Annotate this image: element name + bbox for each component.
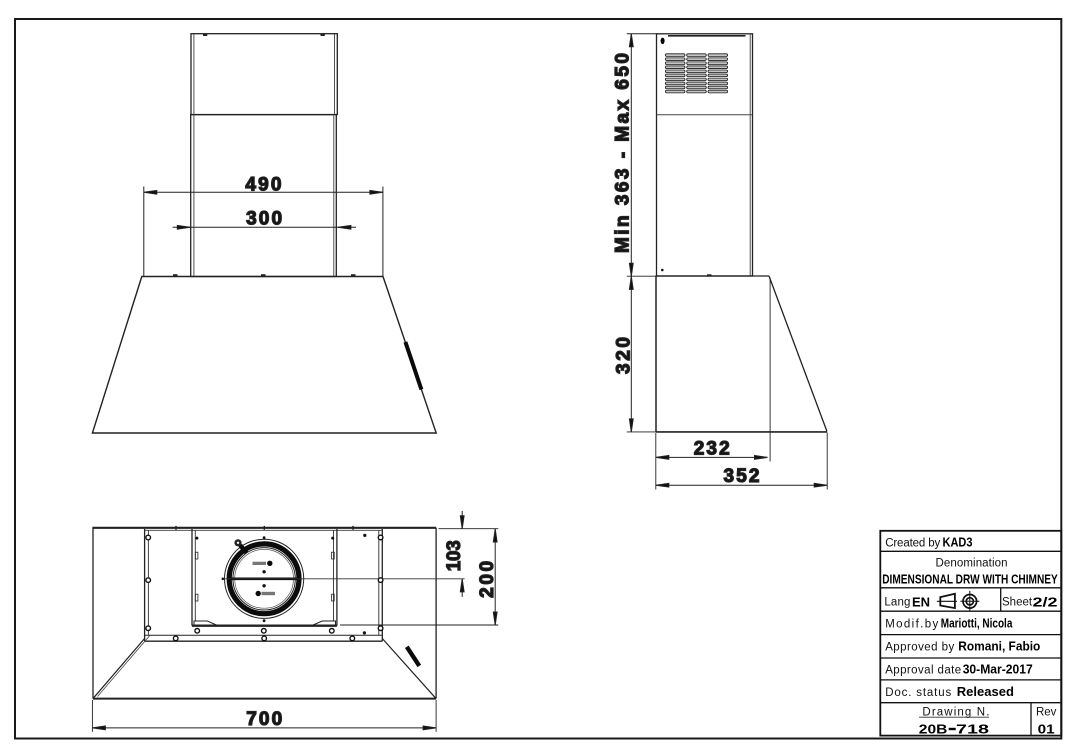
svg-text:Modif.by: Modif.by [885, 619, 938, 631]
svg-text:700: 700 [246, 709, 282, 730]
svg-text:Mariotti, Nicola: Mariotti, Nicola [941, 616, 1013, 631]
svg-text:Drawing N.: Drawing N. [922, 706, 989, 718]
svg-text:103: 103 [444, 540, 465, 571]
svg-text:Approved by: Approved by [885, 642, 954, 654]
svg-text:Doc. status: Doc. status [885, 687, 951, 699]
svg-text:490: 490 [245, 175, 281, 196]
svg-text:DIMENSIONAL DRW WITH CHIMNEY: DIMENSIONAL DRW WITH CHIMNEY [882, 572, 1058, 587]
svg-text:Created by: Created by [885, 538, 940, 550]
svg-text:KAD3: KAD3 [943, 535, 973, 550]
svg-text:Released: Released [957, 684, 1014, 699]
svg-text:01: 01 [1038, 722, 1055, 737]
svg-text:Min 363 - Max 650: Min 363 - Max 650 [612, 53, 633, 253]
svg-text:Romani, Fabio: Romani, Fabio [958, 639, 1040, 654]
svg-text:Lang: Lang [884, 597, 910, 609]
svg-text:20B: 20B [919, 722, 948, 737]
svg-text:Sheet: Sheet [1002, 597, 1033, 609]
svg-text:EN: EN [912, 595, 930, 610]
svg-text:30-Mar-2017: 30-Mar-2017 [963, 662, 1033, 677]
svg-text:320: 320 [613, 337, 634, 374]
svg-text:Rev: Rev [1036, 706, 1057, 718]
svg-text:Denomination: Denomination [936, 557, 1008, 569]
svg-text:200: 200 [477, 561, 498, 598]
svg-text:Approval date: Approval date [885, 665, 961, 677]
svg-text:300: 300 [246, 208, 282, 229]
svg-text:2/2: 2/2 [1033, 595, 1058, 610]
svg-text:352: 352 [724, 466, 760, 487]
svg-text:232: 232 [694, 438, 730, 459]
svg-text:718: 718 [956, 722, 989, 737]
